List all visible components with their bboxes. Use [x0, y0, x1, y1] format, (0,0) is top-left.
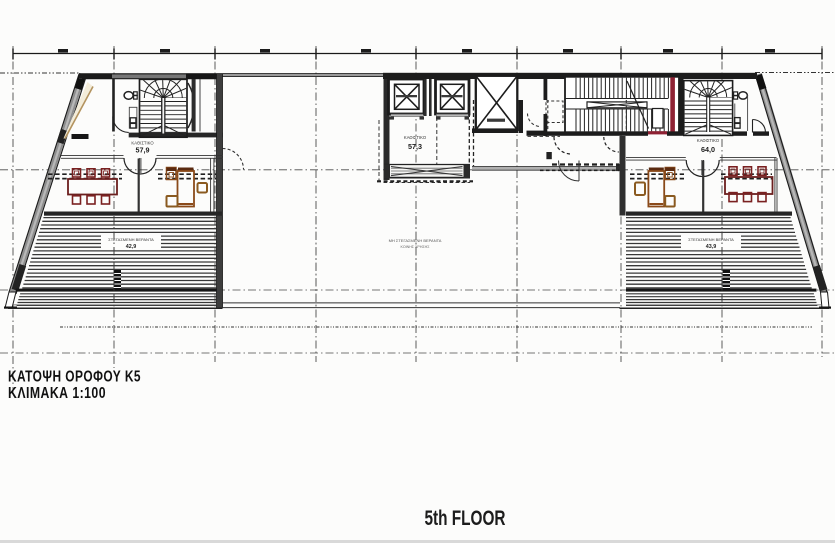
svg-text:5th FLOOR: 5th FLOOR: [425, 507, 506, 530]
svg-text:ΚΑΘΙΣΤΙΚΟ: ΚΑΘΙΣΤΙΚΟ: [404, 135, 427, 140]
svg-text:ΚΑΘΙΣΤΙΚΟ: ΚΑΘΙΣΤΙΚΟ: [697, 138, 720, 143]
svg-text:ΣΤΕΓΑΣΜΕΝΗ ΒΕΡΑΝΤΑ: ΣΤΕΓΑΣΜΕΝΗ ΒΕΡΑΝΤΑ: [688, 237, 734, 242]
svg-text:ΚΑΤΟΨΗ ΟΡΟΦΟΥ Κ5: ΚΑΤΟΨΗ ΟΡΟΦΟΥ Κ5: [8, 369, 141, 386]
svg-text:ΚΛΙΜΑΚΑ 1:100: ΚΛΙΜΑΚΑ 1:100: [8, 385, 106, 402]
svg-text:57,3: 57,3: [408, 142, 422, 151]
svg-text:43,9: 43,9: [706, 244, 717, 250]
svg-text:ΚΟΙΝΗΣ ΧΡΗΣΗΣ: ΚΟΙΝΗΣ ΧΡΗΣΗΣ: [401, 245, 431, 249]
svg-text:42,9: 42,9: [126, 244, 137, 250]
svg-text:ΣΤΕΓΑΣΜΕΝΗ ΒΕΡΑΝΤΑ: ΣΤΕΓΑΣΜΕΝΗ ΒΕΡΑΝΤΑ: [108, 237, 154, 242]
svg-text:ΜΗ ΣΤΕΓΑΣΜΕΝΗ ΒΕΡΑΝΤΑ: ΜΗ ΣΤΕΓΑΣΜΕΝΗ ΒΕΡΑΝΤΑ: [389, 238, 442, 243]
svg-text:64,0: 64,0: [701, 145, 715, 154]
svg-text:57,9: 57,9: [136, 146, 150, 155]
